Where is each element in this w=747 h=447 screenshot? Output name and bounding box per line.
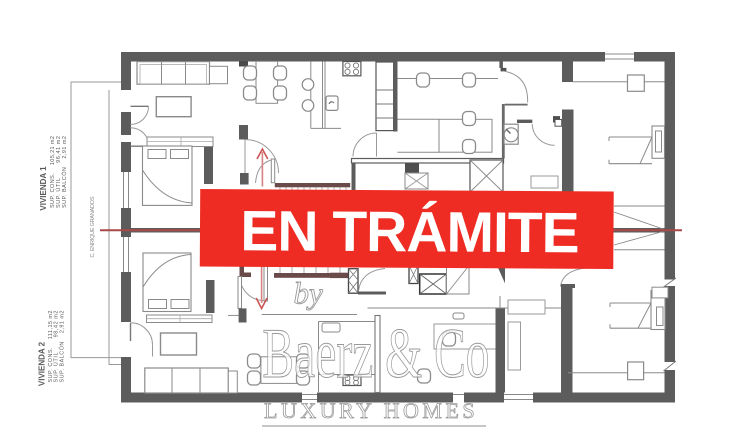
svg-text:LUXURY HOMES: LUXURY HOMES [264, 398, 478, 423]
svg-text:Baerz & Co: Baerz & Co [262, 315, 489, 394]
svg-text:VIVIENDA 2: VIVIENDA 2 [38, 341, 47, 386]
svg-text:VIVIENDA 1: VIVIENDA 1 [39, 166, 48, 211]
svg-text:by: by [294, 276, 324, 311]
svg-text:SUP. ÚTIL 96,41 m2: SUP. ÚTIL 96,41 m2 [55, 136, 62, 208]
svg-text:C. ENRIQUE GRANADOS: C. ENRIQUE GRANADOS [90, 196, 96, 257]
svg-text:SUP. BALCÓN 2,91 m2: SUP. BALCÓN 2,91 m2 [59, 311, 66, 383]
svg-text:SUP. ÚTIL 98,42 m2: SUP. ÚTIL 98,42 m2 [53, 311, 60, 383]
svg-text:EN TRÁMITE: EN TRÁMITE [240, 199, 579, 265]
svg-text:SUP. BALCÓN 2,91 m2: SUP. BALCÓN 2,91 m2 [61, 136, 68, 208]
